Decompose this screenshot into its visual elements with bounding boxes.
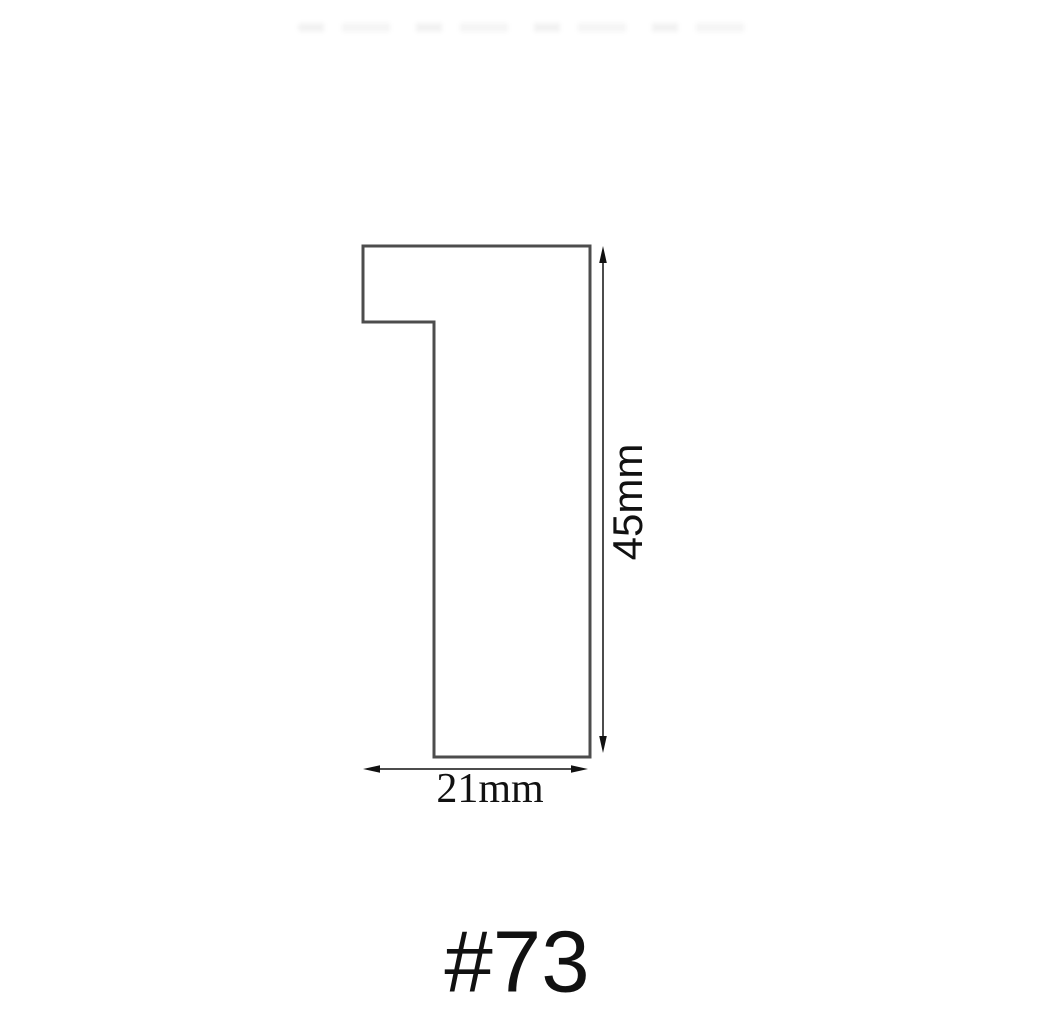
height-dimension-label: 45mm xyxy=(607,444,649,561)
profile-drawing xyxy=(0,0,1041,1031)
arrow-down-icon xyxy=(599,736,607,753)
arrow-up-icon xyxy=(599,246,607,263)
model-number-label: #73 xyxy=(444,919,589,1006)
width-dimension-label: 21mm xyxy=(436,768,543,810)
diagram-canvas: 45mm 21mm #73 xyxy=(0,0,1041,1031)
profile-outline xyxy=(363,246,590,757)
arrow-right-icon xyxy=(571,765,588,773)
arrow-left-icon xyxy=(363,765,380,773)
